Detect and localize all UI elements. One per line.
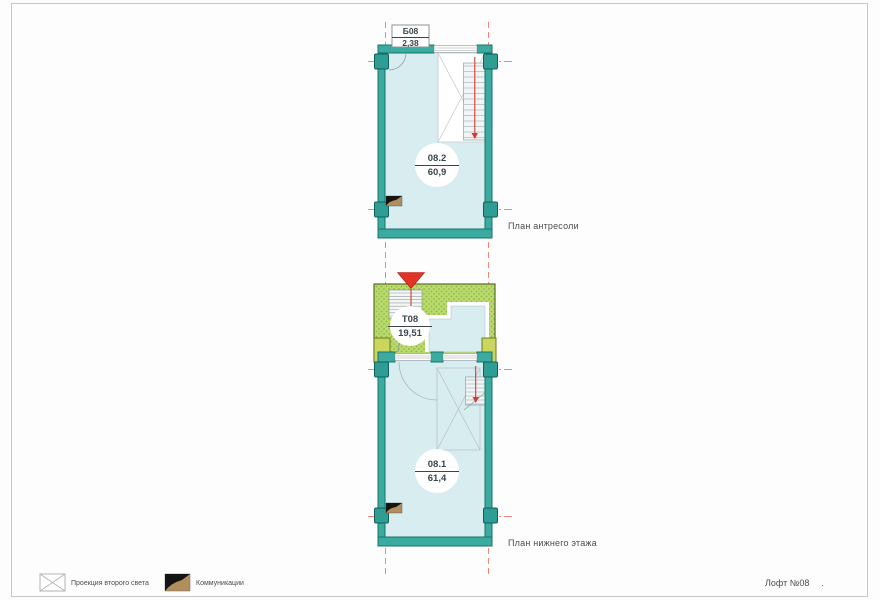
legend-second-light-icon	[40, 574, 65, 591]
mezzanine-room-number: 08.2	[415, 153, 459, 166]
mezzanine-caption: План антресоли	[508, 221, 579, 231]
lower-room-area: 61,4	[415, 473, 459, 485]
legend-communications-icon	[165, 574, 190, 591]
sheet-title-text: Лофт №08	[765, 578, 809, 588]
mezzanine-room-area: 60,9	[415, 167, 459, 179]
mezzanine-plan	[375, 25, 498, 238]
mezzanine-stairs-icon	[464, 57, 486, 140]
balcony-area: 2,38	[392, 39, 429, 49]
communications-marker-icon	[386, 196, 402, 206]
mezzanine-room-label: 08.2 60,9	[415, 153, 459, 178]
floor-plan-drawing	[0, 0, 880, 600]
legend-second-light-label: Проекция второго света	[71, 580, 149, 587]
sheet-title: Лофт №08.	[765, 578, 824, 588]
drawing-sheet: Б08 2,38 08.2 60,9 План антресоли Т08 19…	[0, 0, 880, 600]
communications-marker-icon	[386, 503, 402, 513]
legend-communications-label: Коммуникации	[196, 580, 244, 587]
balcony-tag: Б08 2,38	[392, 27, 429, 48]
mezzanine-window-icon	[434, 46, 477, 53]
balcony-code: Б08	[392, 27, 429, 38]
terrace-area: 19,51	[388, 328, 432, 340]
sheet-title-dot: .	[821, 578, 824, 588]
lower-caption: План нижнего этажа	[508, 538, 597, 548]
terrace-label: Т08 19,51	[388, 314, 432, 339]
lower-room-label: 08.1 61,4	[415, 459, 459, 484]
lower-room-number: 08.1	[415, 459, 459, 472]
terrace-code: Т08	[388, 314, 432, 327]
